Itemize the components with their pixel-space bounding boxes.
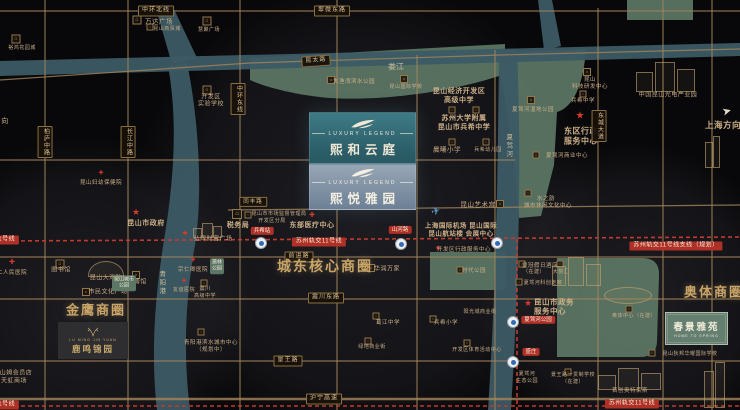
road-tag-zhonghuan-north: 中环北线 [138,6,174,17]
river [538,0,561,50]
road-tag-cuiwei-east: 翠微东路 [314,6,350,17]
project-en-name: LUXURY LEGEND [328,180,396,186]
map-label: 昆山航站楼 会展中心 [428,230,493,237]
map-label: 青阳港滨水城市中心 [184,340,238,346]
map-label: 开发区分局 [258,219,286,225]
project-xiyue-yayuan: LUXURY LEGEND熙悦雅园 [309,164,416,210]
map-label: 景王路一贯制学校 [551,373,595,379]
logo-luming-jinyuan-en-label: LU MING JIN YUAN [69,338,116,342]
building-sketch [604,287,650,302]
label-chengdong-core-business-circle: 城东核心商圈 [277,260,373,276]
building-icon: ⌂ [533,152,540,159]
star-marker-icon: ★ [181,228,188,237]
map-label: 昆山狄邦华曜国际学校 [662,352,717,358]
road-tag-tongfeng: 同丰路 [239,197,267,207]
map-label: 中国昆山光电产业园 [639,93,698,100]
road-tag-zhonghuan-east: 中环东线 [231,83,246,115]
building-sketch-part [705,142,713,168]
building-sketch-part [704,371,714,408]
building-sketch-part [618,368,639,390]
medical-cross-icon: ✚ [9,259,15,267]
park-badge: 萧林公园 [210,258,224,274]
building-sketch-part [202,223,212,238]
metro-station-icon [507,356,519,368]
map-label: 夏驾河商业中心 [546,153,588,159]
building-icon: ⌂ [133,16,142,25]
location-map-canvas: 中环北线翠微东路昆太路规划道路同丰路前进路震川东路景王路沪宁高速柏庐中路长江中路… [0,0,740,410]
building-icon: ⌂ [580,91,587,98]
luxury-legend-swoosh-icon [350,119,376,129]
map-label: 开发区行政服务中心 [437,247,491,253]
map-label: 高级中学 [194,294,216,300]
metro-line11-label-left: 苏州轨交11号线 [0,236,19,245]
map-label: 税务局 [227,222,250,230]
map-label: 苏州大学附属 [442,115,487,123]
building-sketch-part [88,261,124,277]
map-label: 绿地商业街 [358,345,386,351]
building-sketch-part [604,287,652,304]
label-aoti-business-circle: 奥体商圈 [684,286,740,301]
map-label: 震川 [199,287,210,293]
project-en-name: LUXURY LEGEND [328,131,396,137]
map-label: 生态公园 [516,379,538,385]
building-icon: ⌂ [12,35,21,44]
building-sketch-part [655,62,674,92]
metro-line11-label-south: 苏州轨交11号线 [605,400,659,409]
label-jinying-business-circle: 金鹰商圈 [66,304,126,319]
building-sketch [705,136,719,166]
building-icon: ⌂ [649,350,656,357]
metro-line11-label: 苏州轨交11号线 [292,238,346,247]
map-label: 昆山国际学校 [389,85,422,91]
map-label: 兵希幼儿园 [474,148,502,154]
building-icon: ⌂ [464,340,471,347]
building-sketch-part [552,266,566,286]
divider-line [312,133,325,134]
building-icon: ⌂ [373,313,380,320]
building-icon: ⌂ [203,86,212,95]
map-label: 晨曦小学 [433,146,461,153]
map-label: 上海国际机场 昆山国际 [425,222,497,229]
road-tag-huning-expressway: 沪宁高速 [306,394,342,405]
map-label: 山姆会员店 [0,371,32,378]
map-label: 昆山商贸城 [153,27,181,33]
map-label: 夏驾河湿地公园 [512,107,554,113]
metro-station-icon [255,237,267,249]
building-sketch-part [598,375,616,390]
park-area [627,0,693,20]
metro-line11-label-bottomleft: 苏州轨交11号线 [0,401,19,410]
map-label: 兵希中学 [571,98,595,104]
road-tag-bailu-middle: 柏庐中路 [38,126,53,158]
luxury-legend-swoosh-icon [350,168,376,178]
star-marker-icon: ★ [524,298,532,308]
map-label: 城市休闲文化中心 [524,203,572,209]
building-sketch-part [213,226,223,238]
map-label: 开发区 [201,95,221,102]
map-label: 万达广场 [145,18,173,25]
logo-chunjing-yayuan-en-label: HOME TO SPRING [674,334,719,338]
building-sketch-part [193,228,202,238]
building-sketch-part [586,264,601,286]
map-label: 昆山经济开发区 [433,88,486,96]
logo-luming-jinyuan: LU MING JIN YUAN鹿鸣锦园 [58,322,128,359]
building-sketch-part [641,373,660,390]
station-tag-shengzhuang: 盛庄 [522,348,539,356]
project-xihe-yunting-cn-label: 熙和云庭 [325,139,400,158]
star-marker-icon: ★ [132,207,140,217]
road-tag-zhenchuan-east: 震川东路 [308,293,344,304]
star-marker-icon: ★ [576,110,585,122]
road-tag-jingwang: 景王路 [273,356,302,367]
building-icon: ⌂ [198,329,205,336]
building-icon: ⌂ [449,107,456,114]
station-tag-xiajiahe-park: 夏驾河公园 [521,316,555,324]
map-label: 向 [1,118,9,126]
map-label: 昆山市市场监督管理局 [251,212,306,218]
station-tag-bingxi: 兵希站 [251,227,274,235]
map-label: 科技研发中心 [572,84,608,90]
building-sketch-part [715,362,725,408]
medical-cross-icon: ✚ [98,171,103,178]
building-icon: ⌂ [583,68,591,76]
river-label-qingyanggang: 青阳港 [157,270,164,296]
antler-logo-icon [84,327,102,337]
map-label: （规划中） [196,347,226,353]
project-xihe-yunting-en-label: LUXURY LEGEND [312,131,412,137]
map-label: 二人民医院 [0,270,27,276]
building-icon: ⌂ [516,279,523,286]
building-sketch [88,261,122,275]
map-label: （在建） [562,380,584,386]
building-icon: ⌂ [626,306,633,313]
river-label-loujiang: 娄江 [388,62,404,72]
building-sketch [193,223,221,236]
building-icon: ⌂ [203,17,212,26]
divider-line [400,133,413,134]
park-badge-label: 公园 [212,266,222,272]
logo-chunjing-yayuan-cn-label: 春景雅苑 [673,319,719,333]
building-icon: ⌂ [449,139,456,146]
map-label: 昆山艺术宫 [461,201,496,208]
map-label: 时代公园 [462,268,486,274]
project-xiyue-yayuan-cn-label: 熙悦雅园 [325,188,400,207]
medical-cross-icon: ✚ [190,258,195,265]
park-badge: 昆山城市公园 [112,275,136,291]
logo-luming-jinyuan-cn-label: 鹿鸣锦园 [72,343,114,355]
building-icon: ⌂ [400,75,408,83]
river-label-xiajiahe: 夏驾河 [504,133,511,159]
map-label: 开发区体育活动中心 [452,348,502,354]
map-label: 昆山妇幼保健院 [80,180,122,186]
logo-chunjing-yayuan: 春景雅苑HOME TO SPRING [665,312,728,345]
map-label: 宗仁卿医院 [178,267,208,273]
park-badge-label: 公园 [114,283,134,289]
project-xihe-yunting: LUXURY LEGEND熙和云庭 [309,112,416,164]
building-sketch [598,368,660,388]
map-label: 大渔湾滨水公园 [333,79,375,85]
map-label: 昆山 [584,77,596,83]
map-label: 华润万家 [374,267,400,274]
map-label: 昆山市政府 [127,220,165,228]
road-tag-kuntai: 昆太路 [301,55,331,68]
building-icon: ⌂ [496,200,504,208]
building-sketch [636,62,694,90]
map-label: 友谊医院 [173,288,195,294]
building-icon: ⌂ [473,107,480,114]
road-tag-dongcheng-avenue: 东城大道 [592,110,607,142]
map-label: 葛江中学 [376,320,400,326]
map-label: 东部医疗中心 [290,222,335,230]
map-label: 高级中学 [444,97,474,105]
divider-line [312,182,325,183]
map-label: 天虹商场 [1,379,27,386]
map-label: 奥体中心（在建） [612,314,656,320]
divider-line [400,182,413,183]
map-label: 上海方向 [705,121,740,131]
map-label: 慧聚广场 [198,28,220,34]
building-icon: ⌂ [527,96,535,104]
map-label: 水之韵 [537,196,555,202]
building-sketch-part [677,69,695,92]
map-label: 图书馆 [51,268,71,275]
metro-station-icon [491,237,503,249]
building-sketch-part [568,257,584,286]
road-tag-changjiang-middle: 长江中路 [121,126,136,158]
building-icon: ⌂ [245,212,252,219]
map-label: 实验学校 [198,102,224,109]
project-xiyue-yayuan-en-label: LUXURY LEGEND [312,180,412,186]
map-label: 兵希小学 [434,320,458,326]
medical-cross-icon: ✚ [181,279,186,286]
building-sketch-part [636,72,653,92]
station-tag-shanhe: 山河路 [389,226,412,234]
map-label: 夏驾河 [519,372,536,378]
building-sketch-part [713,136,721,168]
map-label: 昆山市兵希中学 [438,124,491,132]
building-sketch [704,362,724,406]
metro-station-icon [507,316,519,328]
building-icon: ⌂ [483,139,490,146]
map-label: 裕鸿花园城 [8,46,36,52]
map-label: （在建） [523,270,545,276]
building-icon: ⌂ [525,190,532,197]
medical-cross-icon: ✚ [309,212,315,220]
building-sketch [552,257,600,284]
metro-station-icon [395,238,407,250]
building-icon: ⌂ [232,209,242,219]
metro-line-dashed [0,237,740,241]
metro-line11-branch-label: 苏州轨交11号线支线（规划） [629,242,722,251]
map-label: 阳光城商业街 [463,310,496,316]
